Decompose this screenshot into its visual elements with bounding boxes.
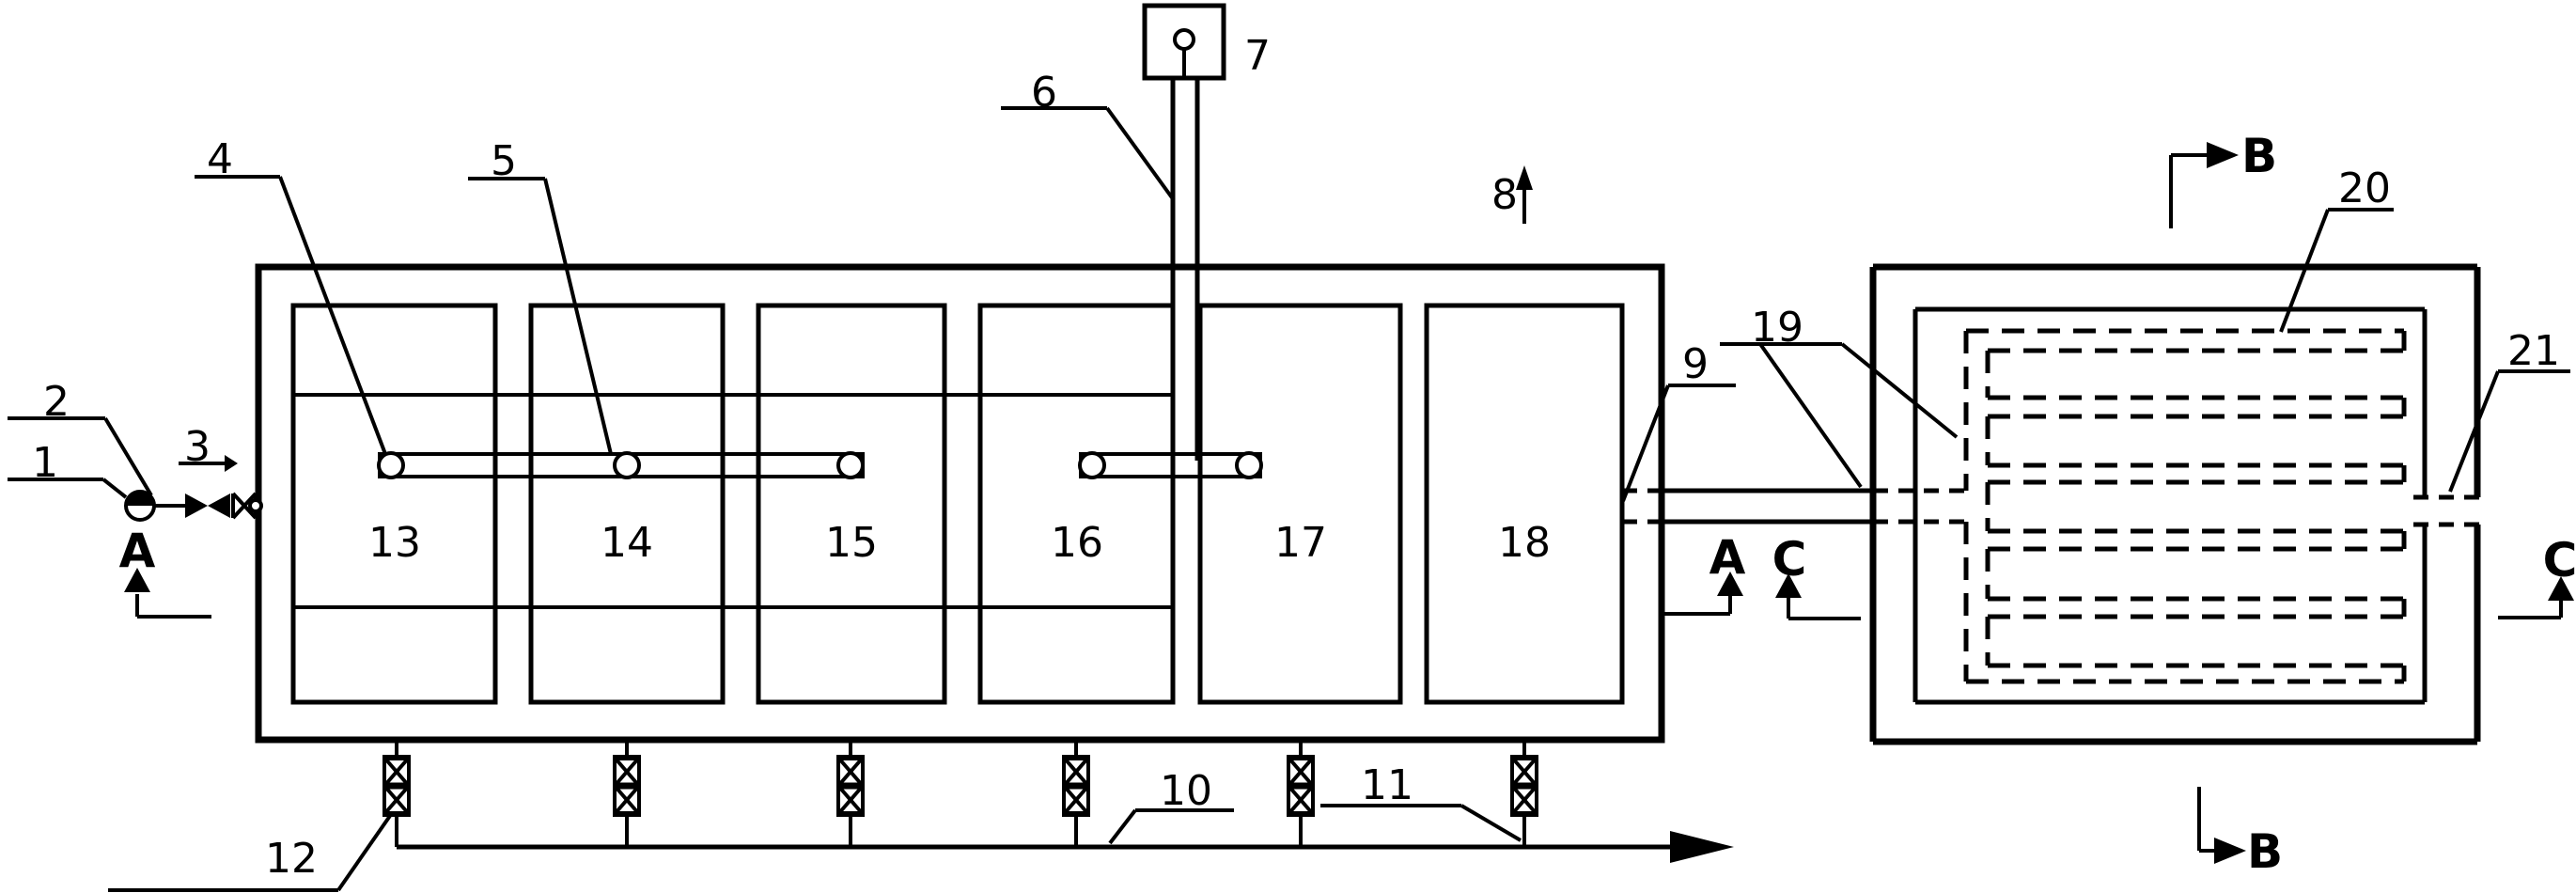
section-c-right-label: C — [2543, 533, 2576, 587]
section-a-mid-label: A — [1710, 530, 1746, 585]
callout-3-arrowhead — [225, 455, 238, 472]
paddle-bearing-2 — [615, 453, 639, 478]
paddle-bearing-5 — [1237, 453, 1261, 478]
compartment-14-box — [531, 305, 723, 702]
compartment-16-label: 16 — [1051, 519, 1103, 567]
compartment-14-label: 14 — [601, 519, 653, 567]
paddle-bearing-1 — [379, 453, 403, 478]
callout-19-leader-b — [1842, 344, 1957, 437]
callout-2-leader — [105, 418, 151, 495]
section-b-bottom-label: B — [2247, 824, 2283, 879]
callout-2-label: 2 — [43, 378, 70, 426]
compartment-17-box — [1200, 305, 1400, 702]
callout-10-leader — [1110, 810, 1135, 843]
callout-11-label: 11 — [1361, 761, 1413, 809]
callout-21-label: 21 — [2507, 327, 2560, 375]
callout-8-label: 8 — [1491, 171, 1518, 219]
callout-5-label: 5 — [491, 137, 517, 185]
inlet-valve1-tri-right — [208, 493, 230, 518]
compartment-13-label: 13 — [368, 519, 421, 567]
callout-5-leader — [545, 179, 611, 454]
compartment-15-label: 15 — [825, 519, 878, 567]
main-tank-outline — [258, 267, 1662, 740]
section-a-left-label: A — [119, 524, 156, 578]
drain-outlet-arrowhead — [1670, 831, 1734, 863]
diagram-canvas: 123456789101112131415161718192021AACCBB — [0, 0, 2576, 893]
section-b-top-label: B — [2241, 129, 2277, 183]
compartment-18-box — [1427, 305, 1622, 702]
diagram-page: 123456789101112131415161718192021AACCBB — [0, 0, 2576, 893]
callout-20-leader — [2281, 210, 2328, 332]
callout-6-leader — [1107, 108, 1174, 200]
compartment-17-label: 17 — [1274, 519, 1327, 567]
callout-19-leader-a — [1760, 344, 1861, 487]
callout-1-label: 1 — [32, 439, 58, 487]
callout-19-label: 19 — [1751, 304, 1803, 352]
callout-3-label: 3 — [184, 423, 211, 471]
callout-12-label: 12 — [265, 835, 318, 883]
paddle-bearing-3 — [838, 453, 863, 478]
callout-6-label: 6 — [1031, 69, 1057, 117]
callout-4-leader — [280, 177, 385, 454]
compartment-15-box — [758, 305, 945, 702]
inlet-valve1-tri-left — [185, 493, 208, 518]
motor-indicator — [1175, 30, 1194, 49]
callout-7-label: 7 — [1244, 32, 1271, 80]
inlet-flange — [250, 500, 261, 511]
paddle-bearing-4 — [1080, 453, 1104, 478]
callout-12-leader — [338, 813, 392, 890]
compartment-16-box — [980, 305, 1173, 702]
compartment-18-label: 18 — [1498, 519, 1551, 567]
callout-4-label: 4 — [207, 135, 233, 183]
compartment-13-box — [293, 305, 495, 702]
callout-20-label: 20 — [2338, 164, 2391, 212]
section-b-top-arrowhead — [2207, 142, 2239, 168]
callout-1-leader — [103, 479, 126, 497]
callout-9-label: 9 — [1682, 340, 1709, 388]
section-b-bottom-arrowhead — [2214, 838, 2246, 864]
callout-10-label: 10 — [1160, 767, 1212, 815]
callout-8-arrowhead — [1516, 165, 1533, 190]
section-c-mid-label: C — [1772, 532, 1807, 587]
